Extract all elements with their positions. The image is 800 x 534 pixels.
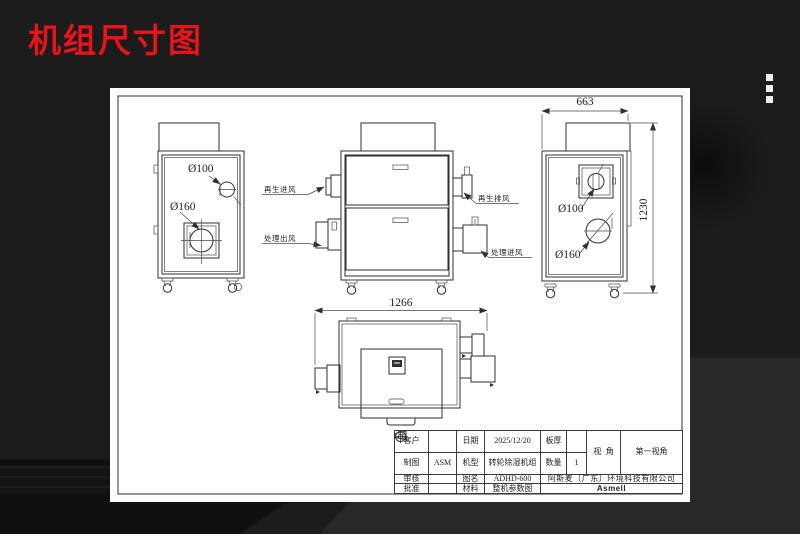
right-view-height-dim: 1230 [638, 198, 650, 221]
plan-view: 1266 [315, 297, 495, 425]
page-title: 机组尺寸图 [28, 14, 203, 62]
first-angle-text: 第一视角 [636, 448, 668, 456]
model-label: 机型 [457, 452, 485, 474]
view-angle-label: 视 角 [587, 431, 621, 475]
material-label: 材料 [457, 484, 485, 494]
company-name: 阿斯麦（广东）环境科技有限公司 [541, 474, 683, 484]
right-view-width-dim: 663 [576, 96, 594, 108]
label-regen-exhaust: 再生排风 [478, 193, 510, 203]
right-view-d160-dim: Ø160 [555, 249, 581, 261]
right-view-d100-dim: Ø100 [558, 203, 584, 215]
date-value: 2025/12/20 [485, 431, 541, 453]
label-process-inlet: 处理进风 [491, 247, 523, 257]
dots-decoration [766, 74, 773, 107]
label-regen-inlet: 再生进风 [264, 184, 296, 194]
slide-canvas: { "header": { "title": "机组尺寸图" }, "color… [0, 0, 800, 534]
drafter-value: ASM [429, 452, 457, 474]
drawing-sheet: Ø100 Ø160 [110, 88, 690, 502]
caster [545, 284, 556, 298]
approver-value [429, 484, 457, 494]
customer-value [429, 431, 457, 453]
caster [346, 280, 357, 294]
plan-view-width-dim: 1266 [390, 297, 413, 309]
thickness-value [567, 431, 587, 453]
dot [766, 96, 773, 103]
approver-label: 批准 [395, 484, 429, 494]
view-angle-cell: 第一视角 [621, 431, 683, 475]
model-value: 转轮除湿机组 [485, 452, 541, 474]
label-process-outlet: 处理出风 [264, 233, 296, 243]
caster [609, 284, 620, 298]
qty-label: 数量 [541, 452, 567, 474]
left-side-view: Ø100 Ø160 [154, 123, 244, 292]
drawing-name-value: ADHD-600 [485, 474, 541, 484]
left-view-d100-dim: Ø100 [188, 163, 214, 175]
checker-value [429, 474, 457, 484]
left-view-d160-dim: Ø160 [170, 201, 196, 213]
date-label: 日期 [457, 431, 485, 453]
caster [162, 278, 173, 292]
material-value: 整机参数图 [485, 484, 541, 494]
checker-label: 审核 [395, 474, 429, 484]
qty-value: 1 [567, 452, 587, 474]
dot [766, 74, 773, 81]
caster [436, 280, 447, 294]
drawing-name-label: 图名 [457, 474, 485, 484]
dot [766, 85, 773, 92]
caster [227, 278, 242, 292]
title-block: 客户 日期 2025/12/20 板厚 视 角 第一视角 [394, 430, 682, 494]
right-side-view: 663 1230 Ø100 [542, 96, 658, 298]
asmell-logo: Asmell [541, 484, 683, 494]
thickness-label: 板厚 [541, 431, 567, 453]
drafter-label: 制图 [395, 452, 429, 474]
front-view: 再生进风 处理出风 再生排风 处理进风 [262, 123, 532, 294]
